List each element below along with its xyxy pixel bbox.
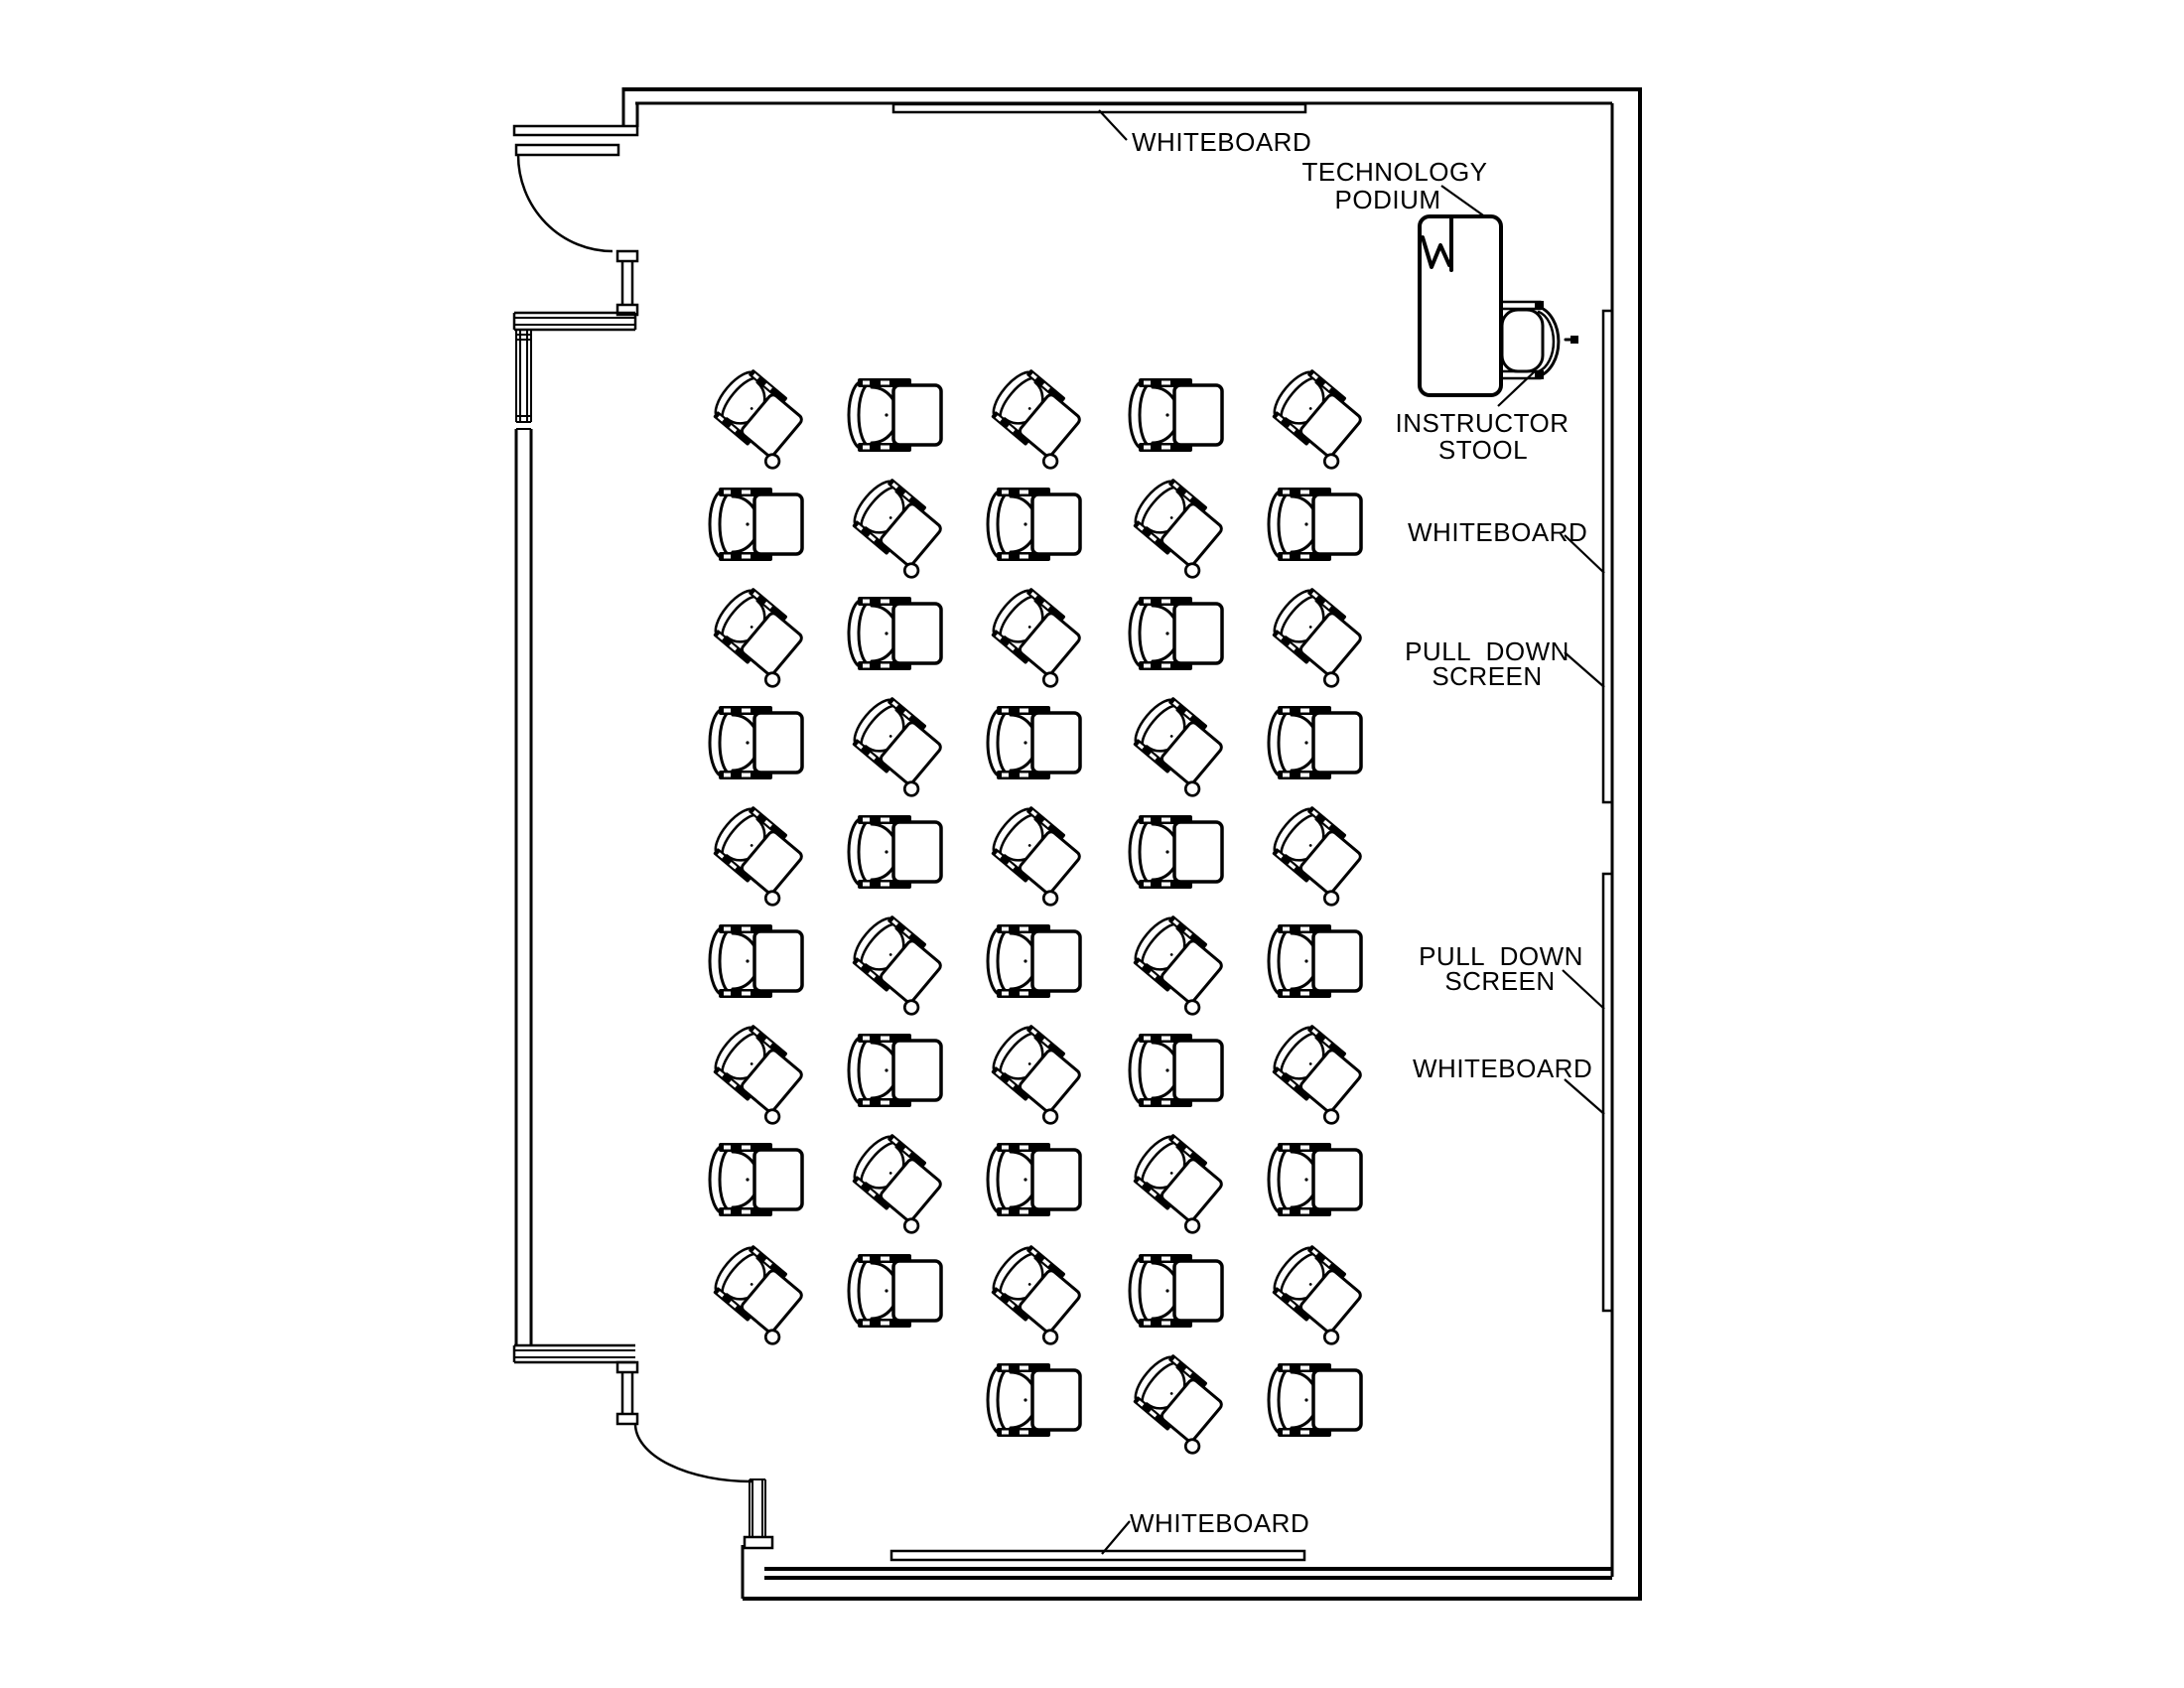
student-chair-b xyxy=(1269,488,1361,561)
student-chair-b xyxy=(1130,378,1222,452)
label-pull-down-screen-lower-2: SCREEN xyxy=(1444,966,1555,996)
student-chair-b xyxy=(988,488,1080,561)
label-whiteboard-right-lower: WHITEBOARD xyxy=(1413,1054,1592,1083)
label-whiteboard-bottom: WHITEBOARD xyxy=(1130,1508,1309,1538)
technology-podium xyxy=(1420,216,1501,395)
student-chair-b xyxy=(710,488,802,561)
student-chair-a xyxy=(845,474,954,581)
student-chair-a xyxy=(1126,911,1235,1018)
student-chair-b xyxy=(710,706,802,779)
leader-instructor-stool xyxy=(1498,371,1535,406)
floor-plan-drawing: WHITEBOARD TECHNOLOGY PODIUM INSTRUCTOR … xyxy=(0,0,2184,1688)
leader-whiteboard-right-lower xyxy=(1565,1079,1604,1114)
student-chair-a xyxy=(1126,692,1235,799)
student-chair-b xyxy=(988,1363,1080,1437)
leader-whiteboard-top xyxy=(1099,110,1127,140)
door-jamb-cap xyxy=(617,1414,637,1424)
student-chair-a xyxy=(706,1240,815,1347)
student-chairs xyxy=(706,364,1374,1457)
label-whiteboard-right-upper: WHITEBOARD xyxy=(1408,517,1587,547)
student-chair-a xyxy=(1126,474,1235,581)
window-left xyxy=(516,331,531,429)
floor-plan-page: WHITEBOARD TECHNOLOGY PODIUM INSTRUCTOR … xyxy=(0,0,2184,1688)
student-chair-b xyxy=(1130,1254,1222,1328)
stool-detail xyxy=(1570,336,1578,344)
monitor-icon xyxy=(1423,237,1449,267)
student-chair-a xyxy=(1265,1020,1374,1127)
student-chair-a xyxy=(984,801,1093,909)
student-chair-a xyxy=(984,583,1093,690)
student-chair-a xyxy=(845,911,954,1018)
student-chair-a xyxy=(706,583,815,690)
student-chair-b xyxy=(710,1143,802,1216)
label-pull-down-screen-upper-2: SCREEN xyxy=(1432,661,1542,691)
door-jamb-cap xyxy=(617,1362,637,1372)
student-chair-a xyxy=(1126,1349,1235,1457)
student-chair-b xyxy=(849,815,941,889)
student-chair-b xyxy=(1130,1034,1222,1107)
student-chair-a xyxy=(706,364,815,472)
student-chair-b xyxy=(1130,597,1222,670)
door-jamb-cap xyxy=(617,251,637,261)
label-technology-podium-1: TECHNOLOGY xyxy=(1301,157,1487,187)
student-chair-b xyxy=(988,1143,1080,1216)
student-chair-a xyxy=(984,1020,1093,1127)
student-chair-a xyxy=(706,801,815,909)
student-chair-b xyxy=(849,378,941,452)
label-instructor-stool-1: INSTRUCTOR xyxy=(1396,408,1570,438)
label-instructor-stool-2: STOOL xyxy=(1438,435,1528,465)
label-technology-podium-2: PODIUM xyxy=(1335,185,1441,214)
label-whiteboard-top: WHITEBOARD xyxy=(1132,127,1311,157)
student-chair-b xyxy=(849,1034,941,1107)
student-chair-a xyxy=(1126,1129,1235,1236)
leader-pull-down-screen-lower xyxy=(1563,970,1604,1009)
door-header xyxy=(514,126,637,135)
student-chair-a xyxy=(1265,364,1374,472)
student-chair-b xyxy=(849,597,941,670)
student-chair-b xyxy=(1130,815,1222,889)
student-chair-b xyxy=(1269,1363,1361,1437)
door-swing-arc xyxy=(518,155,613,251)
leader-pull-down-screen-upper xyxy=(1565,652,1604,687)
stool-seat xyxy=(1502,310,1543,371)
leader-whiteboard-bottom xyxy=(1102,1521,1130,1554)
student-chair-a xyxy=(984,1240,1093,1347)
student-chair-b xyxy=(1269,706,1361,779)
door-top-left xyxy=(514,126,637,330)
leader-technology-podium xyxy=(1441,186,1486,217)
student-chair-b xyxy=(1269,1143,1361,1216)
student-chair-b xyxy=(988,706,1080,779)
door-leaf xyxy=(516,145,618,155)
student-chair-a xyxy=(1265,583,1374,690)
instructor-stool xyxy=(1501,301,1578,379)
student-chair-b xyxy=(710,924,802,998)
podium-outline xyxy=(1420,216,1501,395)
student-chair-b xyxy=(1269,924,1361,998)
whiteboard-bottom xyxy=(891,1551,1304,1560)
student-chair-b xyxy=(988,924,1080,998)
student-chair-a xyxy=(1265,1240,1374,1347)
student-chair-a xyxy=(706,1020,815,1127)
student-chair-a xyxy=(1265,801,1374,909)
door-swing-arc xyxy=(635,1424,751,1481)
student-chair-a xyxy=(845,1129,954,1236)
door-jamb-cap xyxy=(745,1537,772,1548)
student-chair-a xyxy=(984,364,1093,472)
student-chair-b xyxy=(849,1254,941,1328)
door-bottom-left xyxy=(514,1345,772,1548)
student-chair-a xyxy=(845,692,954,799)
